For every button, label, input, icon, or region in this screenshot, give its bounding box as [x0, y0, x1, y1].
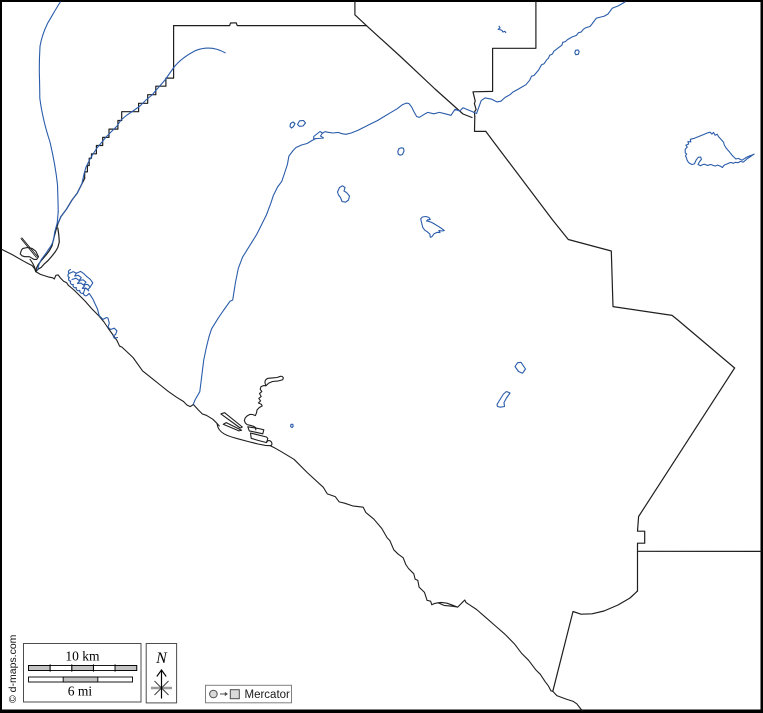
svg-text:N: N — [155, 650, 168, 667]
svg-text:10 km: 10 km — [65, 649, 100, 664]
svg-text:© d-maps.com: © d-maps.com — [7, 634, 19, 703]
svg-text:Mercator: Mercator — [245, 689, 291, 701]
svg-text:6 mi: 6 mi — [68, 684, 93, 699]
